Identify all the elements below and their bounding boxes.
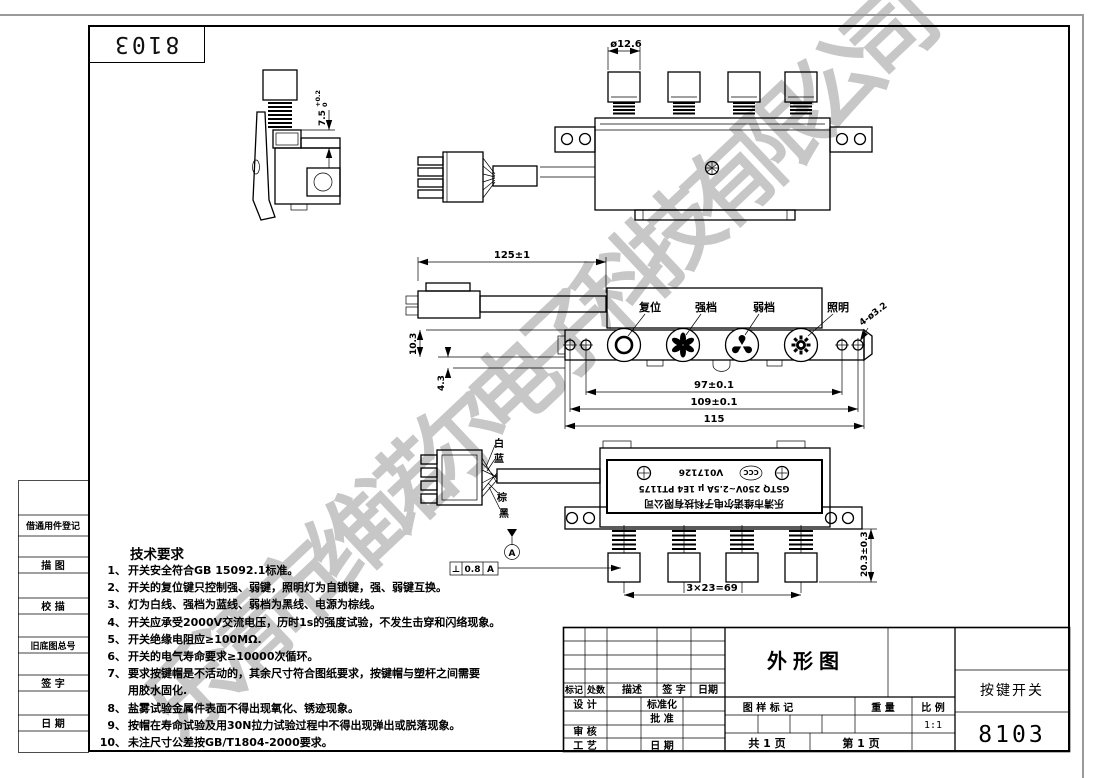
screw-icon-left [776, 467, 789, 480]
weight-header: 重 量 [871, 701, 894, 714]
drawing-view-name: 外形图 [767, 649, 845, 673]
scale-header: 比 例 [921, 701, 944, 714]
dim-10-3: 10.3 [409, 333, 419, 355]
dim-4-holes: 4-ø3.2 [858, 301, 890, 328]
wire-white-label: 白 [494, 437, 504, 450]
corner-code-text: 8103 [112, 31, 179, 57]
label-date: 日 期 [41, 717, 64, 730]
product-code: 8103 [978, 722, 1045, 748]
dim-pitch: 3×23=69 [686, 583, 738, 594]
top-cable-connector [406, 283, 606, 318]
title-block: 标记 处数 描述 签 字 日期 设 计 标准化 批 准 审 核 工 艺 日 期 … [563, 627, 1070, 752]
technical-requirements: 技术要求 1、开关安全符合GB 15092.1标准。 2、开关的复位键只控制强、… [96, 543, 500, 751]
tech-req-item: 7、要求按键帽是不活动的，其余尺寸符合图纸要求，按键帽与塑杆之间需要 [96, 665, 500, 682]
label-reset: 复位 [638, 300, 661, 314]
tech-req-item: 6、开关的电气寿命要求≥10000次循环。 [96, 648, 500, 665]
datum-symbol: A [505, 529, 520, 560]
dim-height: 20.3±0.3 [860, 531, 870, 577]
audit-label: 审 核 [573, 725, 596, 738]
corner-code-box: 8103 [88, 25, 205, 63]
light-icon [792, 336, 811, 355]
side-dim-7-5: 7.5 +0.2 0 [301, 90, 340, 168]
screw-icon-right [638, 467, 651, 480]
front-spring-4 [790, 103, 812, 114]
design-label: 设 计 [573, 698, 596, 711]
label-high: 强档 [695, 300, 717, 314]
rating-text: GSTQ 250V~2.5A μ 1E4 PT1175 [639, 483, 790, 493]
mark-header: 图 样 标 记 [743, 701, 793, 714]
page-number: 第 1 页 [842, 736, 879, 750]
label-borrow-register: 借通用件登记 [25, 520, 80, 532]
tech-req-item: 1、开关安全符合GB 15092.1标准。 [96, 562, 500, 579]
tech-req-item: 5、开关绝缘电阻应≥100MΩ. [96, 631, 500, 648]
label-company: 乐清市维诺尔电子科技有限公司 [644, 497, 784, 510]
wire-black-label: 黑 [499, 508, 509, 520]
tech-req-item: 8、盐雾试验金属件表面不得出现氧化、锈迹现象。 [96, 700, 500, 717]
dim-4-3: 4.3 [437, 375, 447, 391]
dim-97: 97±0.1 [694, 380, 734, 391]
approve-label: 批 准 [650, 712, 673, 725]
dim-7-5: 7.5 [318, 110, 328, 126]
dim-cap-dia: ø12.6 [610, 39, 642, 50]
rev-count-header: 处数 [586, 684, 606, 696]
datum-letter: A [509, 549, 516, 559]
side-bracket [253, 112, 275, 220]
rev-sign-header: 签 字 [661, 683, 685, 696]
label-trace: 描 图 [41, 559, 64, 572]
scale-value: 1:1 [924, 720, 942, 731]
tech-req-item: 2、开关的复位键只控制强、弱键，照明灯为自锁键，强、弱键互换。 [96, 579, 500, 596]
cert-number: V017126 [679, 467, 724, 477]
dim-115: 115 [704, 414, 725, 425]
outer-border-right [1082, 14, 1084, 778]
outer-border-top [0, 14, 1084, 16]
tech-req-item: 9、按帽在寿命试验及用30N拉力试验过程中不得出现弹出或脱落现象。 [96, 717, 500, 734]
label-old-drawing-no: 旧底图总号 [30, 640, 75, 652]
tech-req-item: 10、未注尺寸公差按GB/T1804-2000要求。 [96, 734, 500, 751]
tech-req-title: 技术要求 [130, 543, 500, 562]
front-spring-3 [733, 103, 755, 114]
front-spring-2 [673, 103, 695, 114]
side-view: 7.5 +0.2 0 [235, 50, 365, 240]
dim-109: 109±0.1 [691, 397, 738, 408]
tech-req-item: 3、灯为白线、强档为蓝线、弱档为黑线、电源为棕线。 [96, 596, 500, 613]
front-view: ø12.6 [540, 35, 890, 240]
total-pages: 共 1 页 [748, 736, 785, 750]
left-margin-column: 借通用件登记 描 图 校 描 旧底图总号 签 字 日 期 [18, 480, 89, 753]
label-check-trace: 校 描 [41, 600, 64, 613]
rating-label-plate: CCC V017126 GSTQ 250V~2.5A μ 1E4 PT1175 … [607, 460, 822, 513]
rev-desc-header: 描述 [622, 683, 642, 696]
rev-mark-header: 标记 [564, 684, 583, 696]
label-low: 弱档 [753, 300, 775, 314]
rev-date-header: 日期 [698, 683, 718, 696]
button-reset [608, 329, 641, 362]
top-view: 125±1 [398, 243, 898, 443]
wire-blue-label: 蓝 [494, 452, 504, 465]
dim-7-5-minus: 0 [321, 102, 329, 107]
tech-req-item: 用胶水固化. [96, 682, 500, 699]
side-spring [268, 103, 292, 127]
product-name: 按键开关 [980, 683, 1044, 699]
label-light: 照明 [827, 301, 849, 314]
side-view-geometry [253, 70, 341, 220]
side-lamp [314, 173, 332, 191]
connector-detail-view [405, 140, 545, 220]
top-dim-cable: 125±1 [418, 250, 606, 293]
tb-date-label: 日 期 [650, 739, 673, 752]
process-label: 工 艺 [573, 739, 596, 752]
center-screw [706, 162, 719, 175]
front-spring-1 [613, 103, 635, 114]
front-dim-cap: ø12.6 [608, 39, 642, 70]
standardize-label: 标准化 [646, 698, 677, 711]
dim-cable-length: 125±1 [494, 250, 530, 261]
front-view-geometry [540, 72, 872, 220]
ccc-mark-text: CCC [743, 468, 758, 476]
bottom-connector [421, 450, 600, 505]
connector-detail-geometry [418, 152, 537, 202]
label-signature: 签 字 [40, 677, 64, 690]
tech-req-item: 4、开关应承受2000V交流电压，历时1s的强度试验，不发生击穿和闪络现象。 [96, 614, 500, 631]
top-dims: 97±0.1 109±0.1 115 10.3 4.3 4-ø3.2 [409, 301, 889, 429]
